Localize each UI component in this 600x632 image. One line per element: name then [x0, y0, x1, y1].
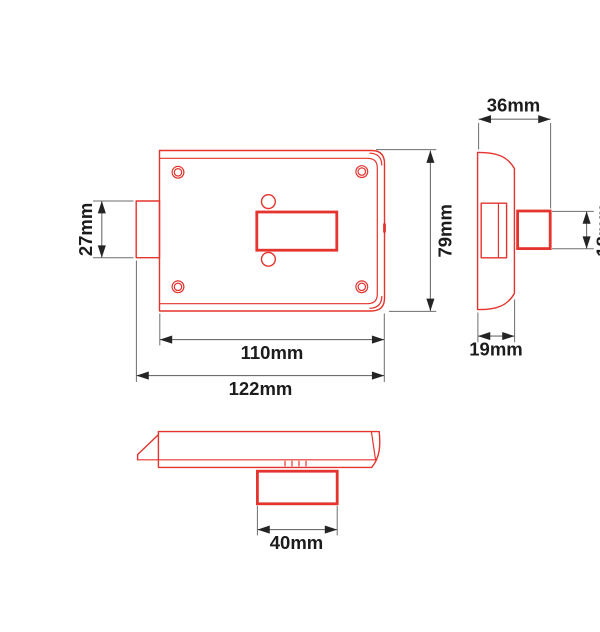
- cylinder-housing: [257, 471, 337, 504]
- case-bottom-outline: [158, 432, 379, 468]
- dimension-front-overall-width: 122mm: [136, 261, 384, 400]
- lock-case-inner-rim: [160, 158, 378, 303]
- lock-case-outline: [160, 151, 385, 312]
- keyhole-plate: [257, 212, 337, 250]
- screw-hole-bottom-left: [172, 281, 184, 293]
- front-view: [136, 151, 384, 312]
- latch-bolt-side: [518, 211, 551, 249]
- dimension-bottom-cylinder-width: 40mm: [257, 506, 337, 553]
- dimension-label: 36mm: [487, 95, 540, 116]
- dimension-label: 110mm: [241, 342, 304, 363]
- dimension-label: 18mm: [592, 203, 600, 256]
- bottom-view: [138, 432, 380, 504]
- dimension-label: 122mm: [229, 378, 293, 399]
- dimension-label: 40mm: [270, 532, 323, 553]
- dimension-label: 79mm: [434, 204, 455, 257]
- spindle-hole-upper: [262, 195, 276, 209]
- screw-hole-top-left: [172, 166, 184, 178]
- latch-bolt-bevel: [138, 435, 159, 460]
- screw-hole-top-right: [356, 166, 368, 178]
- dimension-front-inner-width: 110mm: [160, 314, 384, 383]
- latch-guide-side: [481, 203, 506, 258]
- side-view: [478, 152, 551, 309]
- dimension-side-bolt-height: 18mm: [552, 203, 600, 256]
- dimension-front-latch-height: 27mm: [75, 201, 134, 258]
- case-lip-arc-bottom-right: [370, 296, 382, 308]
- latch-bolt-front: [136, 201, 159, 258]
- dimension-label: 19mm: [469, 339, 522, 360]
- drawing-canvas: 27mm 110mm 122mm 79mm 36mm 18mm: [40, 16, 600, 616]
- screw-hole-bottom-right: [356, 281, 368, 293]
- dimension-label: 27mm: [75, 203, 96, 256]
- rim-lock-technical-drawing: 27mm 110mm 122mm 79mm 36mm 18mm: [40, 16, 600, 616]
- spindle-hole-lower: [262, 252, 276, 266]
- case-bottom-inner-edge-right: [371, 432, 375, 461]
- case-profile-outline: [478, 152, 515, 309]
- serration-ticks: [285, 461, 306, 467]
- dimension-front-height: 79mm: [376, 150, 455, 312]
